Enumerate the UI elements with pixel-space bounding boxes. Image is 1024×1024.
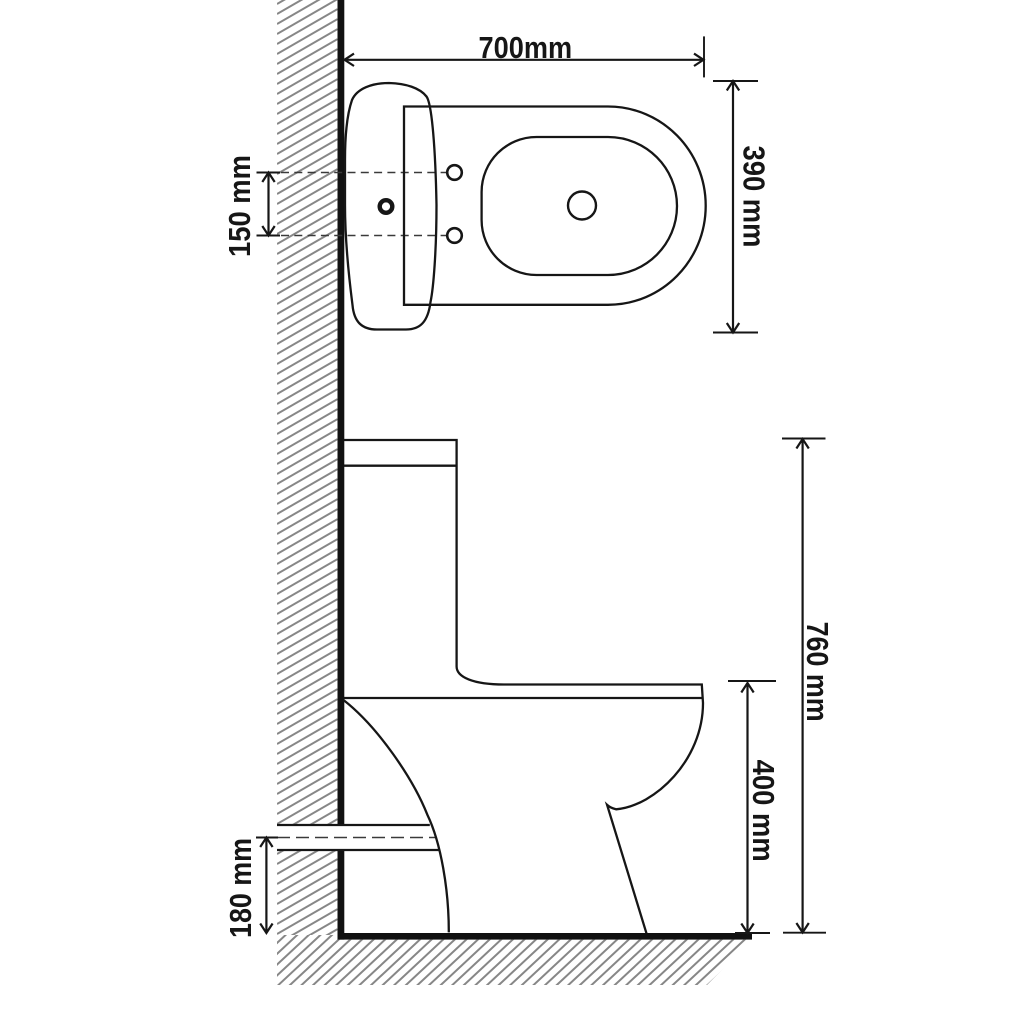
svg-text:760 mm: 760 mm xyxy=(800,622,834,722)
svg-text:400 mm: 400 mm xyxy=(746,760,780,862)
svg-text:390 mm: 390 mm xyxy=(736,145,770,247)
svg-text:700mm: 700mm xyxy=(479,32,573,66)
svg-text:180 mm: 180 mm xyxy=(224,838,258,938)
svg-text:150 mm: 150 mm xyxy=(224,155,258,257)
